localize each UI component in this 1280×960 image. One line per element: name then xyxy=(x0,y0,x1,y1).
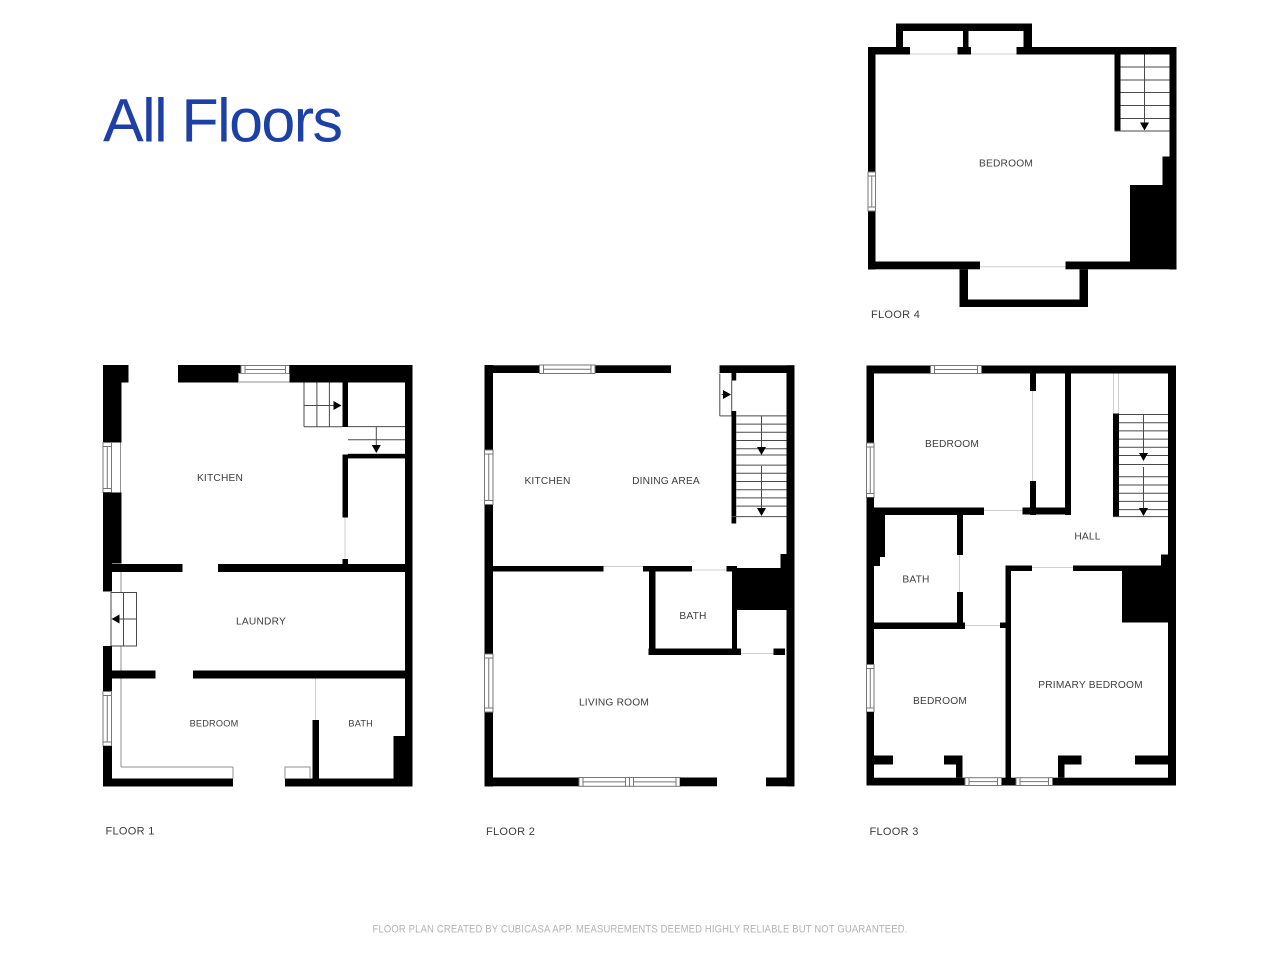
svg-text:BATH: BATH xyxy=(348,719,373,729)
svg-text:LIVING ROOM: LIVING ROOM xyxy=(579,698,649,709)
svg-text:FLOOR PLAN CREATED BY CUBICASA: FLOOR PLAN CREATED BY CUBICASA APP. MEAS… xyxy=(373,924,908,936)
svg-text:BEDROOM: BEDROOM xyxy=(913,696,967,707)
svg-text:FLOOR 4: FLOOR 4 xyxy=(871,309,920,321)
svg-text:FLOOR 2: FLOOR 2 xyxy=(486,826,535,838)
svg-text:BEDROOM: BEDROOM xyxy=(190,719,239,729)
svg-text:BATH: BATH xyxy=(902,575,929,586)
svg-text:BATH: BATH xyxy=(679,611,706,622)
svg-text:LAUNDRY: LAUNDRY xyxy=(236,617,286,628)
svg-text:PRIMARY BEDROOM: PRIMARY BEDROOM xyxy=(1038,680,1143,691)
svg-text:HALL: HALL xyxy=(1074,532,1100,543)
svg-text:BEDROOM: BEDROOM xyxy=(979,159,1033,170)
svg-text:DINING AREA: DINING AREA xyxy=(632,476,700,487)
svg-text:FLOOR 1: FLOOR 1 xyxy=(106,826,155,838)
svg-text:FLOOR 3: FLOOR 3 xyxy=(870,826,919,838)
svg-text:KITCHEN: KITCHEN xyxy=(524,476,570,487)
svg-text:All Floors: All Floors xyxy=(103,87,343,155)
svg-text:BEDROOM: BEDROOM xyxy=(925,439,979,450)
svg-text:KITCHEN: KITCHEN xyxy=(197,473,243,484)
